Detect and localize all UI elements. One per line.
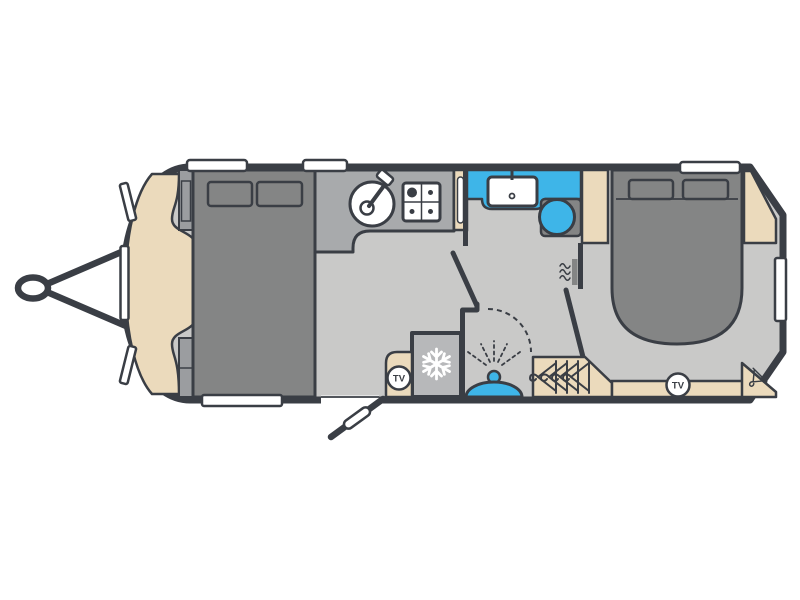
front-bed-pillow-1 [208, 182, 252, 206]
rear-window [775, 258, 786, 321]
caravan-floorplan: TV TV [0, 0, 800, 600]
rooflight-window-1 [187, 160, 247, 171]
entry-door [321, 396, 383, 438]
tow-hitch-bar-upper [47, 250, 126, 284]
washbasin [488, 177, 537, 206]
rear-bed-pillow-1 [629, 180, 673, 199]
tv-point-rear-label: TV [672, 381, 685, 392]
front-bed-pillow-2 [257, 182, 302, 206]
front-lounge [126, 170, 316, 397]
tv-point-front-label: TV [393, 374, 406, 385]
caravan-floorplan-page: TV TV [0, 0, 800, 600]
front-bottom-window [202, 395, 282, 406]
tow-hitch [18, 250, 126, 326]
hob-burner-1 [407, 188, 417, 198]
hob-burner-3 [410, 209, 415, 214]
rooflight-window-3 [680, 162, 740, 173]
tow-hitch-bar-lower [47, 292, 126, 326]
front-window-2 [121, 246, 129, 320]
rear-bed-pillow-2 [683, 180, 728, 199]
heater-bar [572, 259, 578, 285]
front-window-3 [120, 346, 137, 385]
hob-burner-2 [428, 190, 433, 195]
toilet [540, 200, 575, 235]
hob-burner-4 [428, 209, 433, 214]
rooflight-window-2 [303, 160, 347, 171]
front-window-1 [120, 183, 137, 222]
washroom-door-panel [458, 177, 464, 223]
entry-door-handle [342, 406, 372, 431]
tow-hitch-ring [18, 278, 48, 299]
washroom-cabinet [582, 170, 608, 243]
